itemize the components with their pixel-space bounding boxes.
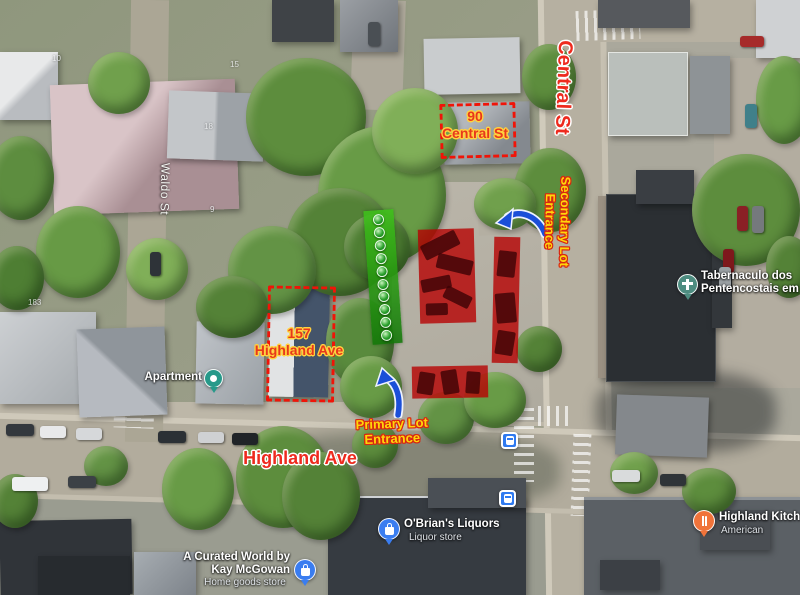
car (612, 470, 640, 482)
house-number: 183 (28, 298, 41, 307)
green-spot-marker-icon (375, 252, 387, 264)
secondary-entrance-arrow (494, 204, 548, 240)
shopping-bag-icon (385, 527, 394, 535)
green-spot-marker-icon (379, 304, 391, 316)
car (368, 22, 380, 46)
tree (36, 206, 120, 298)
building-roof (424, 37, 521, 95)
bus-icon (504, 494, 512, 503)
aerial-map: Central St Highland Ave Waldo St 90 Cent… (0, 0, 800, 595)
poi-category-curated-world: Home goods store (190, 577, 300, 588)
poi-name-church[interactable]: Tabernaculo dos Pentencostais em (701, 270, 800, 296)
car (76, 428, 102, 440)
tree (516, 326, 562, 372)
poi-name-obrians[interactable]: O'Brian's Liquors (404, 518, 524, 531)
car (40, 426, 66, 438)
building-roof (600, 560, 660, 590)
street-label-waldo: Waldo St (158, 161, 173, 217)
car-under-overlay (426, 303, 448, 316)
callout-line: 90 (425, 108, 525, 125)
secondary-lot-entrance-label: Secondary Lot Entrance (542, 171, 573, 271)
crosswalk-intersection-north (538, 406, 574, 426)
red-parking-zone-east (492, 237, 521, 364)
building-roof (272, 0, 334, 42)
building-roof (38, 556, 130, 595)
lodging-pin-icon[interactable] (204, 369, 223, 388)
car (68, 476, 96, 488)
car (6, 424, 34, 436)
car-under-overlay (416, 371, 435, 395)
car (12, 477, 48, 491)
poi-name-curated-world[interactable]: A Curated World by Kay McGowan (168, 551, 290, 577)
car-under-overlay (496, 250, 517, 278)
car-under-overlay (495, 292, 517, 324)
street-label-central: Central St (549, 17, 577, 158)
church-pin-icon[interactable] (677, 274, 698, 295)
building-roof (636, 170, 694, 204)
poi-category-obrians: Liquor store (409, 532, 499, 543)
car (150, 252, 161, 276)
car (752, 206, 764, 233)
car (740, 36, 764, 47)
callout-90-central: 90 Central St (425, 108, 525, 141)
car (232, 433, 258, 445)
building-roof (608, 52, 688, 136)
building-roof (756, 0, 800, 58)
car-under-overlay (494, 330, 516, 357)
house-number: 9 (210, 205, 214, 214)
callout-157-highland: 157 Highland Ave (249, 325, 349, 358)
car-under-overlay (465, 371, 481, 394)
tree (682, 468, 736, 514)
shopping-pin-icon[interactable] (294, 559, 316, 581)
green-spot-marker-icon (378, 291, 390, 303)
red-parking-zone-main (418, 228, 476, 323)
tree (88, 52, 150, 114)
callout-line: Highland Ave (249, 342, 349, 359)
callout-line: 157 (249, 325, 349, 342)
building-roof (598, 0, 690, 28)
poi-category-highland-kitchen: American (721, 525, 791, 536)
street-label-highland: Highland Ave (230, 448, 370, 469)
fork-knife-icon (700, 516, 709, 526)
bus-icon (506, 436, 514, 445)
car-under-overlay (435, 253, 474, 276)
green-spot-marker-icon (380, 317, 392, 329)
primary-entrance-arrow (370, 366, 406, 418)
car (198, 432, 224, 443)
house-number: 10 (52, 54, 61, 63)
car (158, 431, 186, 443)
green-spot-marker-icon (381, 330, 393, 342)
building-roof (615, 394, 709, 457)
green-spot-marker-icon (376, 265, 388, 277)
green-spot-marker-icon (373, 214, 385, 226)
tree (162, 448, 234, 530)
car (660, 474, 686, 486)
car-under-overlay (440, 369, 460, 395)
building-roof (690, 56, 730, 134)
shopping-bag-icon (301, 568, 310, 576)
bus-stop-icon[interactable] (501, 432, 518, 449)
green-spot-marker-icon (374, 240, 386, 252)
dot-icon (210, 375, 217, 382)
green-spot-marker-icon (377, 278, 389, 290)
primary-lot-entrance-label: Primary Lot Entrance (342, 415, 443, 448)
car (737, 206, 748, 231)
house-number: 15 (230, 60, 239, 69)
cross-icon (682, 279, 693, 290)
callout-line: Central St (425, 125, 525, 142)
entrance-line: Secondary Lot (556, 172, 572, 272)
green-spot-marker-icon (374, 227, 386, 239)
car (745, 104, 757, 128)
house-number: 18 (204, 122, 213, 131)
shopping-pin-icon[interactable] (378, 518, 400, 540)
red-parking-zone-south (412, 365, 489, 398)
poi-name-apartment[interactable]: Apartment (128, 371, 202, 384)
restaurant-pin-icon[interactable] (693, 510, 715, 532)
bus-stop-icon[interactable] (499, 490, 516, 507)
poi-name-highland-kitchen[interactable]: Highland Kitchen (719, 511, 800, 524)
